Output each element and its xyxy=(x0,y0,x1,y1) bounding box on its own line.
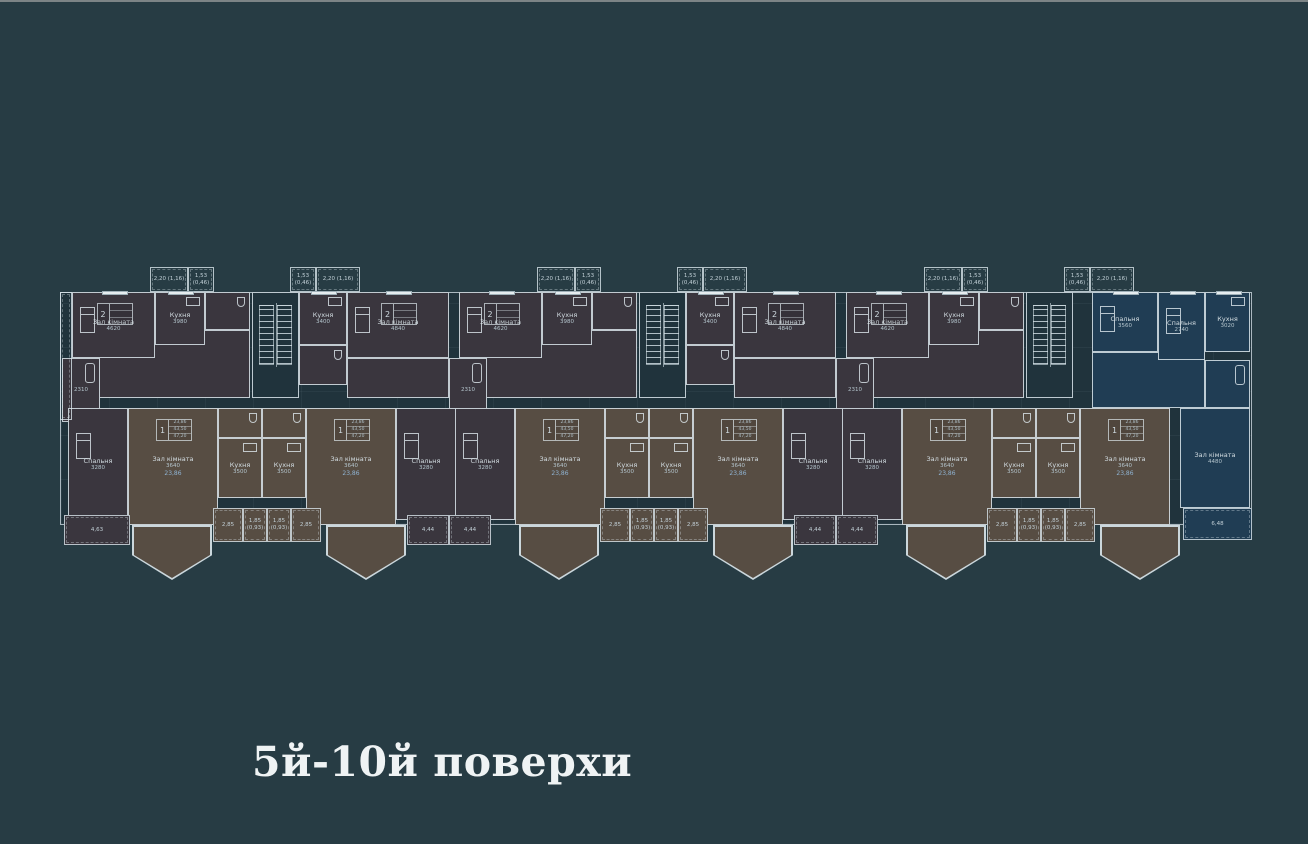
room-label: Кухня3500 xyxy=(617,461,637,476)
room-bedroom: Спальня3280 xyxy=(455,408,515,520)
room-label: 6,48 xyxy=(1211,521,1223,528)
stove-icon xyxy=(1017,443,1031,452)
window-marker xyxy=(773,291,799,295)
room-wc xyxy=(992,408,1036,438)
room-label: Кухня3500 xyxy=(274,461,294,476)
room-wc xyxy=(299,345,347,385)
wc-icon xyxy=(1023,413,1031,423)
stair-flight xyxy=(259,305,274,365)
balcony-bottom: 2,85 xyxy=(600,508,630,542)
room-label: Кухня3500 xyxy=(661,461,681,476)
room-bath xyxy=(1205,360,1250,408)
room-kitchen: Кухня3980 xyxy=(155,292,205,345)
room-label: 4,44 xyxy=(809,527,821,534)
stair-core xyxy=(1026,292,1073,398)
room-label: Зал кімната364023,86 xyxy=(539,455,580,478)
room-living: Зал кімната364023,86123,8643,5047,20 xyxy=(515,408,605,525)
room-kitchen: Кухня3500 xyxy=(1036,438,1080,498)
balcony-bottom: 1,85 (0,93) xyxy=(1041,508,1065,542)
room-kitchen: Кухня3020 xyxy=(1205,292,1250,352)
window-marker xyxy=(1170,291,1196,295)
window-marker xyxy=(386,291,412,295)
wc-icon xyxy=(249,413,257,423)
tub-icon xyxy=(859,363,869,383)
balcony-left-loggia xyxy=(60,292,72,420)
room-label: 2,85 xyxy=(300,522,312,529)
room-label: 2310 xyxy=(848,387,862,394)
stove-icon xyxy=(186,297,200,306)
room-label: Кухня3980 xyxy=(557,311,577,326)
stair-flight xyxy=(277,305,292,365)
bed-icon xyxy=(355,307,370,333)
room-label: 1,85 (0,93) xyxy=(631,518,653,532)
room-label: Кухня3980 xyxy=(944,311,964,326)
balcony-top: 2,20 (1,16) xyxy=(703,267,747,292)
room-wc xyxy=(605,408,649,438)
room-label: 1,53 (0,46) xyxy=(291,273,315,287)
room-living: Зал кімната4480 xyxy=(1180,408,1250,508)
stove-icon xyxy=(715,297,729,306)
tub-icon xyxy=(1235,365,1245,385)
room-label: Кухня3500 xyxy=(1048,461,1068,476)
room-kitchen: Кухня3980 xyxy=(542,292,592,345)
bay-window xyxy=(519,525,599,580)
apartment-table: 2 xyxy=(871,303,907,325)
room-label: Зал кімната364023,86 xyxy=(1104,455,1145,478)
room-wc xyxy=(649,408,693,438)
room-living: Зал кімната364023,86123,8643,5047,20 xyxy=(128,408,218,525)
room-kitchen: Кухня3500 xyxy=(218,438,262,498)
room-label: 4,44 xyxy=(422,527,434,534)
bay-window-glass xyxy=(1102,527,1178,578)
wc-icon xyxy=(1067,413,1075,423)
room-kitchen: Кухня3400 xyxy=(686,292,734,345)
window-marker xyxy=(1113,291,1139,295)
room-kitchen: Кухня3500 xyxy=(262,438,306,498)
window-marker xyxy=(489,291,515,295)
page: 2,20 (1,16)2,20 (1,16)2,20 (1,16)1,53 (0… xyxy=(0,0,1308,844)
stair-flight xyxy=(1051,305,1066,365)
stair-flight xyxy=(664,305,679,365)
stove-icon xyxy=(287,443,301,452)
room-label: 1,85 (0,93) xyxy=(1018,518,1040,532)
bay-window xyxy=(326,525,406,580)
floor-plan: 2,20 (1,16)2,20 (1,16)2,20 (1,16)1,53 (0… xyxy=(0,0,1308,844)
balcony-bottom: 4,63 xyxy=(64,515,130,545)
wc-icon xyxy=(636,413,644,423)
balcony-top: 2,20 (1,16) xyxy=(316,267,360,292)
apartment-table: 123,8643,5047,20 xyxy=(543,419,579,441)
room-bedroom: Спальня3280 xyxy=(68,408,128,520)
stove-icon xyxy=(630,443,644,452)
room-kitchen: Кухня3500 xyxy=(992,438,1036,498)
tub-icon xyxy=(472,363,482,383)
bed-icon xyxy=(404,433,419,459)
room-living: Зал кімната46202 xyxy=(846,292,929,358)
balcony-top: 1,53 (0,46) xyxy=(188,267,214,292)
bed-icon xyxy=(742,307,757,333)
stair-core xyxy=(252,292,299,398)
balcony-bottom: 1,85 (0,93) xyxy=(654,508,678,542)
room-kitchen: Кухня3400 xyxy=(299,292,347,345)
balcony-top: 1,53 (0,46) xyxy=(677,267,703,292)
bed-icon xyxy=(76,433,91,459)
bed-icon xyxy=(791,433,806,459)
room-label: 1,85 (0,93) xyxy=(268,518,290,532)
window-marker xyxy=(876,291,902,295)
balcony-bottom: 1,85 (0,93) xyxy=(267,508,291,542)
apartment-table: 123,8643,5047,20 xyxy=(721,419,757,441)
stove-icon xyxy=(243,443,257,452)
window-marker xyxy=(168,291,194,295)
balcony-top: 2,20 (1,16) xyxy=(150,267,188,292)
wc-icon xyxy=(721,350,729,360)
room-kitchen: Кухня3980 xyxy=(929,292,979,345)
room-bedroom: Спальня3280 xyxy=(842,408,902,520)
room-label: 1,53 (0,46) xyxy=(678,273,702,287)
room-living: Зал кімната46202 xyxy=(459,292,542,358)
room-label: Кухня3020 xyxy=(1217,315,1237,330)
room-wc xyxy=(686,345,734,385)
room-label: 1,85 (0,93) xyxy=(1042,518,1064,532)
room-hall xyxy=(734,358,836,398)
room-hall xyxy=(347,358,449,398)
wc-icon xyxy=(680,413,688,423)
room-hall xyxy=(1092,352,1205,408)
balcony-bottom: 4,44 xyxy=(836,515,878,545)
room-label: 4,44 xyxy=(464,527,476,534)
balcony-top: 2,20 (1,16) xyxy=(924,267,962,292)
stove-icon xyxy=(1061,443,1075,452)
stair-core xyxy=(639,292,686,398)
bed-icon xyxy=(80,307,95,333)
room-label: 2310 xyxy=(74,387,88,394)
room-bedroom: Спальня3280 xyxy=(396,408,456,520)
balcony-top: 2,20 (1,16) xyxy=(1090,267,1134,292)
wc-icon xyxy=(1011,297,1019,307)
apartment-table: 2 xyxy=(768,303,804,325)
balcony-bottom: 2,85 xyxy=(678,508,708,542)
apartment-table: 2 xyxy=(484,303,520,325)
room-bedroom: Спальня3560 xyxy=(1092,292,1158,352)
stove-icon xyxy=(328,297,342,306)
balcony-bottom: 4,44 xyxy=(449,515,491,545)
room-wc xyxy=(205,292,250,330)
room-label: 2,85 xyxy=(222,522,234,529)
apartment-table: 123,8643,5047,20 xyxy=(334,419,370,441)
window-marker xyxy=(555,291,581,295)
room-label: 2,20 (1,16) xyxy=(323,276,354,283)
room-label: Зал кімната364023,86 xyxy=(717,455,758,478)
floors-caption: 5й-10й поверхи xyxy=(252,738,632,786)
room-living: Зал кімната48402 xyxy=(347,292,449,358)
room-label: Кухня3500 xyxy=(230,461,250,476)
window-marker xyxy=(698,291,724,295)
balcony-bottom: 1,85 (0,93) xyxy=(630,508,654,542)
stair-divider xyxy=(1050,303,1051,367)
wc-icon xyxy=(334,350,342,360)
room-label: 2,85 xyxy=(996,522,1008,529)
window-marker xyxy=(942,291,968,295)
apartment-table: 123,8643,5047,20 xyxy=(1108,419,1144,441)
bay-window-glass xyxy=(328,527,404,578)
room-wc xyxy=(592,292,637,330)
balcony-bottom: 4,44 xyxy=(407,515,449,545)
room-label: 1,85 (0,93) xyxy=(655,518,677,532)
stair-divider xyxy=(276,303,277,367)
balcony-bottom: 2,85 xyxy=(213,508,243,542)
bay-window-glass xyxy=(908,527,984,578)
room-label: Кухня3980 xyxy=(170,311,190,326)
balcony-bottom: 2,85 xyxy=(1065,508,1095,542)
stair-divider xyxy=(663,303,664,367)
room-label: 1,53 (0,46) xyxy=(189,273,213,287)
room-label: 1,53 (0,46) xyxy=(1065,273,1089,287)
room-label: Кухня3400 xyxy=(700,311,720,326)
room-label: 1,85 (0,93) xyxy=(244,518,266,532)
room-label: 4,44 xyxy=(851,527,863,534)
room-kitchen: Кухня3500 xyxy=(605,438,649,498)
wc-icon xyxy=(237,297,245,307)
bed-icon xyxy=(1100,306,1115,332)
room-bedroom: Спальня3280 xyxy=(783,408,843,520)
room-label: 2,20 (1,16) xyxy=(710,276,741,283)
room-label: Зал кімната364023,86 xyxy=(330,455,371,478)
wc-icon xyxy=(293,413,301,423)
room-label: Зал кімната364023,86 xyxy=(152,455,193,478)
bed-icon xyxy=(1166,308,1181,334)
window-marker xyxy=(102,291,128,295)
balcony-top: 1,53 (0,46) xyxy=(1064,267,1090,292)
room-label: 2,20 (1,16) xyxy=(1097,276,1128,283)
balcony-bottom: 2,85 xyxy=(987,508,1017,542)
bay-window xyxy=(906,525,986,580)
apartment-table: 123,8643,5047,20 xyxy=(930,419,966,441)
stair-flight xyxy=(646,305,661,365)
bay-window xyxy=(132,525,212,580)
stove-icon xyxy=(573,297,587,306)
room-wc xyxy=(979,292,1024,330)
bay-window-glass xyxy=(134,527,210,578)
balcony-top: 1,53 (0,46) xyxy=(962,267,988,292)
balcony-bottom: 4,44 xyxy=(794,515,836,545)
room-living: Зал кімната46202 xyxy=(72,292,155,358)
balcony-top: 2,20 (1,16) xyxy=(537,267,575,292)
room-label: 2,20 (1,16) xyxy=(541,276,572,283)
bay-window xyxy=(713,525,793,580)
room-label: 2,85 xyxy=(1074,522,1086,529)
bed-icon xyxy=(850,433,865,459)
bay-window-glass xyxy=(521,527,597,578)
room-label: Кухня3500 xyxy=(1004,461,1024,476)
room-label: 1,53 (0,46) xyxy=(963,273,987,287)
window-marker xyxy=(311,291,337,295)
tub-icon xyxy=(85,363,95,383)
stove-icon xyxy=(960,297,974,306)
bed-icon xyxy=(854,307,869,333)
room-wc xyxy=(262,408,306,438)
window-marker xyxy=(1216,291,1242,295)
room-wc xyxy=(1036,408,1080,438)
room-label: 1,53 (0,46) xyxy=(576,273,600,287)
stair-flight xyxy=(1033,305,1048,365)
room-label: 2,85 xyxy=(687,522,699,529)
balcony-top: 1,53 (0,46) xyxy=(575,267,601,292)
room-kitchen: Кухня3500 xyxy=(649,438,693,498)
apartment-table: 2 xyxy=(381,303,417,325)
bay-window-glass xyxy=(715,527,791,578)
wc-icon xyxy=(624,297,632,307)
room-living: Зал кімната48402 xyxy=(734,292,836,358)
room-label: Кухня3400 xyxy=(313,311,333,326)
apartment-table: 2 xyxy=(97,303,133,325)
room-bedroom: Спальня2740 xyxy=(1158,292,1205,360)
balcony-top: 1,53 (0,46) xyxy=(290,267,316,292)
bed-icon xyxy=(463,433,478,459)
bay-window xyxy=(1100,525,1180,580)
stove-icon xyxy=(674,443,688,452)
room-label: 4,63 xyxy=(91,527,103,534)
stove-icon xyxy=(1231,297,1245,306)
room-label: 2,85 xyxy=(609,522,621,529)
room-living: Зал кімната364023,86123,8643,5047,20 xyxy=(902,408,992,525)
room-label: 2310 xyxy=(461,387,475,394)
room-label: Зал кімната4480 xyxy=(1194,451,1235,466)
room-label: 2,20 (1,16) xyxy=(928,276,959,283)
balcony-bottom: 6,48 xyxy=(1183,508,1252,540)
bed-icon xyxy=(467,307,482,333)
balcony-bottom: 1,85 (0,93) xyxy=(1017,508,1041,542)
room-wc xyxy=(218,408,262,438)
balcony-bottom: 1,85 (0,93) xyxy=(243,508,267,542)
room-label: Зал кімната364023,86 xyxy=(926,455,967,478)
room-label: 2,20 (1,16) xyxy=(154,276,185,283)
apartment-table: 123,8643,5047,20 xyxy=(156,419,192,441)
balcony-bottom: 2,85 xyxy=(291,508,321,542)
